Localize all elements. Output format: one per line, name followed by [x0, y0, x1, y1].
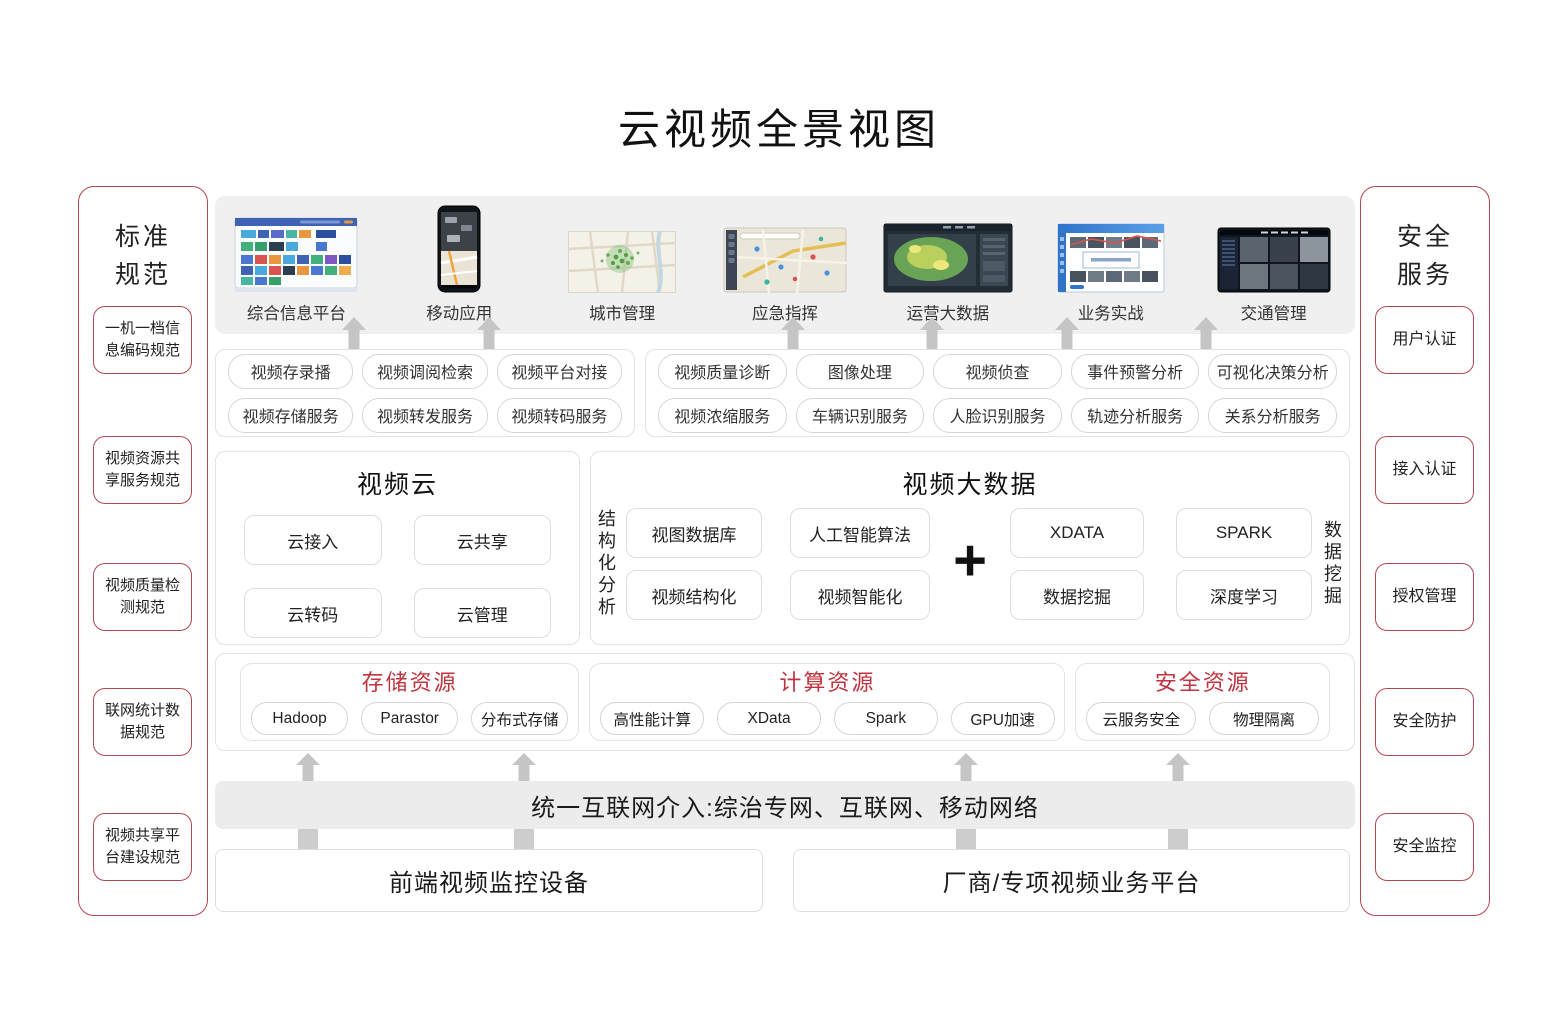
bigdata-node-deep-learning: 深度学习 [1176, 570, 1312, 620]
spec-item-coding: 一机一档信息编码规范 [93, 306, 192, 374]
security-item-user-auth: 用户认证 [1375, 306, 1474, 374]
video-cloud-panel: 视频云 云接入 云共享 云转码 云管理 [215, 451, 580, 645]
service-pill: 视频质量诊断 [658, 354, 787, 389]
vendor-platform-box: 厂商/专项视频业务平台 [793, 849, 1350, 912]
resource-pill: Hadoop [251, 702, 348, 735]
spec-item-platform-build: 视频共享平台建设规范 [93, 813, 192, 881]
bigdata-node-spark: SPARK [1176, 508, 1312, 558]
bigdata-node-ai-algorithm: 人工智能算法 [790, 508, 930, 558]
vertical-label-data-mining: 数据挖掘 [1323, 520, 1341, 608]
cloud-video-panorama-diagram: 云视频全景视图 标准 规范 一机一档信息编码规范 视频资源共享服务规范 视频质量… [0, 0, 1558, 1023]
app-label: 交通管理 [1241, 300, 1307, 324]
bigdata-node-video-intelligence: 视频智能化 [790, 570, 930, 620]
service-pill: 图像处理 [796, 354, 925, 389]
app-label: 城市管理 [589, 300, 655, 324]
operations-bigdata-thumbnail [883, 223, 1013, 293]
service-pill: 视频侦查 [933, 354, 1062, 389]
mobile-app-thumbnail [437, 205, 481, 293]
app-label: 运营大数据 [907, 300, 990, 324]
bigdata-node-data-mining: 数据挖掘 [1010, 570, 1144, 620]
resource-pill: 分布式存储 [471, 702, 568, 735]
applications-band: 综合信息平台 移动应用 城市管理 [215, 196, 1355, 334]
service-pill: 车辆识别服务 [796, 398, 925, 433]
security-item-authz: 授权管理 [1375, 563, 1474, 631]
integrated-platform-thumbnail [234, 217, 358, 293]
security-services-sidebar: 安全 服务 用户认证 接入认证 授权管理 安全防护 安全监控 [1360, 186, 1490, 916]
resource-group-security: 安全资源 云服务安全 物理隔离 [1075, 663, 1330, 741]
cloud-node-share: 云共享 [414, 515, 552, 565]
bigdata-node-view-db: 视图数据库 [626, 508, 762, 558]
service-pill: 人脸识别服务 [933, 398, 1062, 433]
network-access-bar: 统一互联网介入:综治专网、互联网、移动网络 [215, 781, 1355, 829]
plus-icon: + [941, 532, 999, 590]
resource-pill: 物理隔离 [1209, 702, 1319, 735]
vertical-label-structured-analysis: 结构化分析 [597, 509, 615, 619]
video-cloud-title: 视频云 [216, 465, 579, 501]
analysis-services-panel: 视频质量诊断 图像处理 视频侦查 事件预警分析 可视化决策分析 视频浓缩服务 车… [645, 349, 1350, 437]
service-pill: 可视化决策分析 [1208, 354, 1337, 389]
resource-group-title: 计算资源 [600, 669, 1054, 697]
business-combat-thumbnail [1057, 223, 1165, 293]
service-pill: 关系分析服务 [1208, 398, 1337, 433]
security-item-monitoring: 安全监控 [1375, 813, 1474, 881]
security-item-access-auth: 接入认证 [1375, 436, 1474, 504]
video-bigdata-title: 视频大数据 [591, 465, 1349, 501]
up-arrow-icon [920, 317, 944, 349]
connector-stub [1168, 829, 1188, 850]
resource-group-title: 安全资源 [1086, 669, 1319, 697]
service-pill: 视频存储服务 [228, 398, 353, 433]
service-pill: 轨迹分析服务 [1071, 398, 1200, 433]
resource-pill: 高性能计算 [600, 702, 704, 735]
connector-stub [956, 829, 976, 850]
bigdata-node-xdata: XDATA [1010, 508, 1144, 558]
app-cell-city-management: 城市管理 [541, 231, 704, 334]
page-title: 云视频全景视图 [0, 96, 1558, 157]
bigdata-node-video-structuring: 视频结构化 [626, 570, 762, 620]
service-pill: 视频存录播 [228, 354, 353, 389]
service-pill: 视频浓缩服务 [658, 398, 787, 433]
service-pill: 视频转码服务 [497, 398, 622, 433]
security-sidebar-title: 安全 服务 [1361, 219, 1489, 294]
resource-pill: XData [717, 702, 821, 735]
resource-pill: Spark [834, 702, 938, 735]
app-cell-business-combat: 业务实战 [1029, 223, 1192, 334]
standards-sidebar: 标准 规范 一机一档信息编码规范 视频资源共享服务规范 视频质量检测规范 联网统… [78, 186, 208, 916]
resource-group-compute: 计算资源 高性能计算 XData Spark GPU加速 [589, 663, 1065, 741]
basic-services-panel: 视频存录播 视频调阅检索 视频平台对接 视频存储服务 视频转发服务 视频转码服务 [215, 349, 635, 437]
up-arrow-icon [296, 753, 320, 781]
up-arrow-icon [342, 317, 366, 349]
up-arrow-icon [512, 753, 536, 781]
up-arrow-icon [477, 317, 501, 349]
cloud-node-transcode: 云转码 [244, 588, 382, 638]
app-label: 业务实战 [1078, 300, 1144, 324]
service-pill: 视频平台对接 [497, 354, 622, 389]
connector-stub [298, 829, 318, 850]
app-label: 综合信息平台 [247, 300, 346, 324]
service-pill: 视频转发服务 [362, 398, 487, 433]
resource-pill: Parastor [361, 702, 458, 735]
resource-pill: 云服务安全 [1086, 702, 1196, 735]
standards-sidebar-title: 标准 规范 [79, 219, 207, 294]
spec-item-network-stats: 联网统计数据规范 [93, 688, 192, 756]
video-bigdata-panel: 视频大数据 结构化分析 视图数据库 人工智能算法 视频结构化 视频智能化 + X… [590, 451, 1350, 645]
traffic-management-thumbnail [1217, 227, 1331, 293]
city-management-thumbnail [568, 231, 676, 293]
up-arrow-icon [954, 753, 978, 781]
app-cell-operations-bigdata: 运营大数据 [866, 223, 1029, 334]
up-arrow-icon [1194, 317, 1218, 349]
app-cell-mobile-app: 移动应用 [378, 205, 541, 334]
service-pill: 视频调阅检索 [362, 354, 487, 389]
resource-group-title: 存储资源 [251, 669, 568, 697]
front-end-device-box: 前端视频监控设备 [215, 849, 763, 912]
security-item-protection: 安全防护 [1375, 688, 1474, 756]
cloud-node-access: 云接入 [244, 515, 382, 565]
connector-stub [514, 829, 534, 850]
resource-pill: GPU加速 [951, 702, 1055, 735]
up-arrow-icon [1055, 317, 1079, 349]
spec-item-sharing-service: 视频资源共享服务规范 [93, 436, 192, 504]
resource-group-storage: 存储资源 Hadoop Parastor 分布式存储 [240, 663, 579, 741]
spec-item-quality-check: 视频质量检测规范 [93, 563, 192, 631]
cloud-node-manage: 云管理 [414, 588, 552, 638]
resources-panel: 存储资源 Hadoop Parastor 分布式存储 计算资源 高性能计算 XD… [215, 653, 1355, 751]
up-arrow-icon [781, 317, 805, 349]
emergency-command-thumbnail [723, 227, 847, 293]
service-pill: 事件预警分析 [1071, 354, 1200, 389]
up-arrow-icon [1166, 753, 1190, 781]
